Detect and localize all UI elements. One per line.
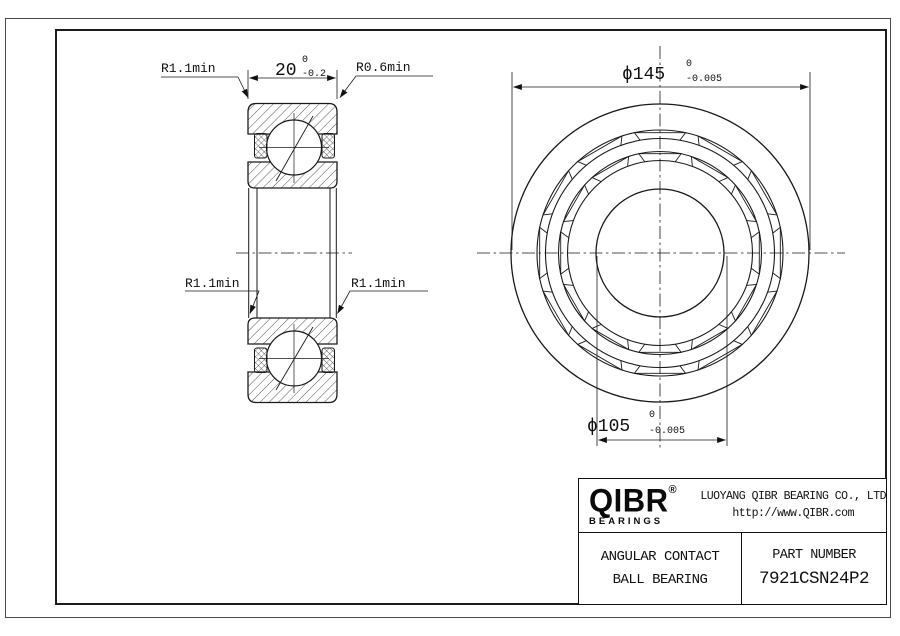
width-dim-tol-upper: 0 (302, 55, 308, 66)
logo-text: QIBR (589, 484, 669, 517)
cage-pocket (698, 136, 742, 165)
part-number-cell: PART NUMBER 7921CSN24P2 (742, 533, 886, 604)
company-website: http://www.QIBR.com (700, 506, 886, 523)
cage-bottom-right (322, 348, 335, 373)
leader-radius-top-right (340, 76, 433, 98)
cage-top-right (322, 134, 335, 159)
cage-pocket (543, 171, 572, 215)
cage-top-left (255, 134, 268, 159)
leader-radius-top-left (161, 77, 248, 98)
width-dim-value: 20 (275, 61, 297, 81)
company-info: LUOYANG QIBR BEARING CO., LTD http://www… (700, 489, 886, 522)
company-name: LUOYANG QIBR BEARING CO., LTD (700, 489, 886, 506)
title-block: QIBR® BEARINGS LUOYANG QIBR BEARING CO.,… (578, 478, 887, 605)
cage-pocket (563, 185, 588, 222)
cage-bottom-left (255, 348, 268, 373)
width-dim-text: 20 0 -0.2 (275, 55, 326, 81)
cage-pocket (731, 185, 756, 222)
drawing-sheet: R1.1min R0.6min R1.1min R1.1min 20 0 -0.… (0, 0, 900, 636)
leader-radius-mid-left (185, 291, 259, 314)
od-dim-tol-upper: 0 (686, 59, 692, 70)
product-name-cell: ANGULAR CONTACT BALL BEARING (579, 533, 742, 604)
cage-pocket (592, 324, 629, 349)
front-view (477, 46, 845, 450)
cage-pocket (731, 284, 756, 321)
cage-pocket (578, 341, 622, 370)
cage-pocket (748, 171, 777, 215)
product-name-line1: ANGULAR CONTACT (601, 549, 720, 565)
radius-label-top-left: R1.1min (161, 61, 216, 76)
part-number-value: 7921CSN24P2 (759, 569, 869, 589)
od-dim-value: ϕ145 (622, 65, 665, 85)
od-dim-text: ϕ145 0 -0.005 (622, 59, 722, 85)
bore-dim-value: ϕ105 (587, 417, 630, 437)
company-logo: QIBR® BEARINGS (579, 485, 700, 527)
bore-dim-text: ϕ105 0 -0.005 (587, 410, 685, 437)
bore-dim-tol-upper: 0 (649, 410, 655, 421)
radius-label-mid-left: R1.1min (185, 276, 240, 291)
registered-mark: ® (669, 484, 677, 496)
title-block-header-row: QIBR® BEARINGS LUOYANG QIBR BEARING CO.,… (579, 479, 886, 533)
radius-label-mid-right: R1.1min (351, 276, 406, 291)
cage-pocket (578, 136, 622, 165)
cage-pocket (691, 156, 728, 181)
bore-dim-tol-lower: -0.005 (649, 426, 685, 437)
cage-pocket (748, 291, 777, 335)
width-dim-tol-lower: -0.2 (302, 69, 326, 80)
cage-pocket (592, 156, 629, 181)
cage-pocket (563, 284, 588, 321)
cage-pocket (698, 341, 742, 370)
section-view (161, 70, 433, 403)
od-dim-tol-lower: -0.005 (686, 74, 722, 85)
leader-radius-mid-right (338, 291, 429, 314)
cage-pocket (543, 291, 572, 335)
product-name-line2: BALL BEARING (613, 572, 708, 588)
part-number-label: PART NUMBER (772, 548, 856, 563)
cage-pocket (691, 324, 728, 349)
title-block-bottom-row: ANGULAR CONTACT BALL BEARING PART NUMBER… (579, 533, 886, 604)
radius-label-top-right: R0.6min (356, 60, 411, 75)
